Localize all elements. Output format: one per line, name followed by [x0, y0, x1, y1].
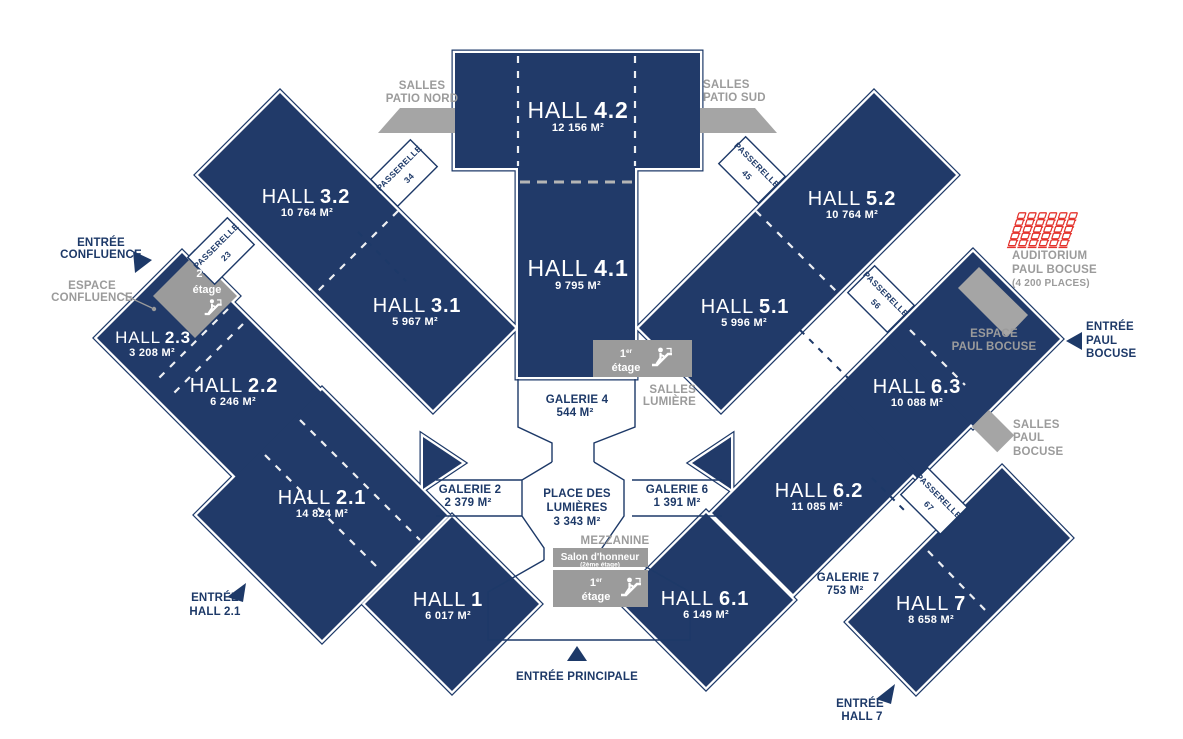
first-floor-box-mezzanine[interactable]: 1er étage — [553, 570, 648, 607]
salles-patio-sud-shape[interactable] — [700, 108, 777, 133]
salles-paul-bocuse-label: SALLES — [1013, 419, 1060, 431]
galerie-7-label: GALERIE 7 — [817, 572, 880, 584]
hall-1-area: 6 017 M² — [425, 610, 471, 622]
salles-paul-bocuse-label2: PAUL — [1013, 432, 1044, 444]
salles-lumiere-label2: LUMIÈRE — [643, 395, 696, 408]
hall-4-2-area: 12 156 M² — [552, 122, 604, 134]
salles-patio-nord-shape[interactable] — [378, 108, 455, 133]
floor-plan-page: PASSERELLE 23 PASSERELLE 34 PASSERELLE 4… — [0, 0, 1183, 739]
hall-6-2-label: HALL6.2 — [775, 480, 863, 502]
hall-6-3-area: 10 088 M² — [891, 397, 943, 409]
place-des-lumieres-area: 3 343 M² — [554, 516, 601, 528]
hall-6-3-label: HALL6.3 — [873, 376, 961, 398]
auditorium-capacity: (4 200 PLACES) — [1012, 278, 1090, 289]
espace-paul-bocuse-label: ESPACE — [970, 328, 1018, 340]
hall-3-2-label: HALL3.2 — [262, 186, 350, 208]
salles-patio-sud-label2: PATIO SUD — [703, 92, 766, 104]
hall-1-label: HALL1 — [413, 589, 483, 611]
hall-5-2-area: 10 764 M² — [826, 209, 878, 221]
hall-7-area: 8 658 M² — [908, 614, 954, 626]
entree-confluence-label: ENTRÉE — [77, 236, 125, 249]
salon-honneur-box[interactable]: Salon d'honneur (2ème étage) — [553, 548, 648, 569]
mezzanine-label: MEZZANINE — [581, 535, 650, 547]
entree-paul-bocuse-label: ENTRÉE — [1086, 320, 1134, 333]
svg-text:étage: étage — [193, 284, 222, 296]
entree-paul-bocuse-arrow-icon — [1066, 332, 1082, 350]
salles-patio-nord-label: SALLES — [399, 80, 446, 92]
svg-text:étage: étage — [582, 591, 611, 603]
salles-paul-bocuse-label3: BOCUSE — [1013, 446, 1064, 458]
hall-2-1-area: 14 824 M² — [296, 508, 348, 520]
hall-2-3-label: HALL2.3 — [115, 328, 191, 347]
galerie-6-area: 1 391 M² — [654, 497, 701, 509]
galerie-4-label: GALERIE 4 — [546, 394, 609, 406]
galerie-2-area: 2 379 M² — [445, 497, 492, 509]
first-floor-box-lumiere[interactable]: 1er étage — [593, 340, 692, 377]
hall-6-1-label: HALL6.1 — [661, 588, 749, 610]
entree-confluence-arrow-icon — [133, 251, 152, 273]
galerie-7-area: 753 M² — [827, 585, 864, 597]
hall-3-2-area: 10 764 M² — [281, 207, 333, 219]
entree-principale-arrow-icon — [567, 646, 587, 661]
hall-5-1-area: 5 996 M² — [721, 317, 767, 329]
hall-2-2-label: HALL2.2 — [190, 375, 278, 397]
hall-3-1-corner-wedge — [423, 437, 462, 489]
entree-paul-bocuse-label2: PAUL — [1086, 335, 1117, 347]
salles-lumiere-label: SALLES — [649, 384, 696, 396]
galerie-2-label: GALERIE 2 — [439, 484, 502, 496]
place-des-lumieres-label2: LUMIÈRES — [546, 501, 607, 514]
hall-2-1-label: HALL2.1 — [278, 487, 366, 509]
place-des-lumieres-label: PLACE DES — [543, 488, 611, 500]
entree-principale-label: ENTRÉE PRINCIPALE — [516, 670, 638, 683]
entree-hall-7-label2: HALL 7 — [841, 711, 882, 723]
entree-hall-2-1-label2: HALL 2.1 — [189, 606, 241, 618]
svg-text:étage: étage — [612, 362, 641, 374]
auditorium-label2: PAUL BOCUSE — [1012, 264, 1097, 276]
auditorium-seats-icon — [1007, 213, 1079, 248]
hall-5-1-corner-wedge — [692, 437, 731, 489]
hall-7-label: HALL7 — [896, 593, 966, 615]
galerie-4-area: 544 M² — [557, 407, 594, 419]
entree-confluence-label2: CONFLUENCE — [60, 249, 142, 261]
espace-confluence-label: ESPACE — [68, 280, 116, 292]
salles-patio-sud-label: SALLES — [703, 79, 750, 91]
galerie-6-label: GALERIE 6 — [646, 484, 709, 496]
hall-3-1-area: 5 967 M² — [392, 316, 438, 328]
hall-4-1-area: 9 795 M² — [555, 280, 601, 292]
hall-6-2-area: 11 085 M² — [791, 501, 843, 513]
auditorium-label: AUDITORIUM — [1012, 250, 1087, 262]
floor-plan-svg: PASSERELLE 23 PASSERELLE 34 PASSERELLE 4… — [0, 0, 1183, 739]
hall-5-1-label: HALL5.1 — [701, 296, 789, 318]
svg-text:(2ème étage): (2ème étage) — [580, 562, 620, 569]
hall-3-1-label: HALL3.1 — [373, 295, 461, 317]
hall-4-2-label: HALL4.2 — [527, 97, 628, 123]
hall-6-1-area: 6 149 M² — [683, 609, 729, 621]
salles-patio-nord-label2: PATIO NORD — [386, 93, 459, 105]
entree-paul-bocuse-label3: BOCUSE — [1086, 348, 1137, 360]
hall-4-1-label: HALL4.1 — [527, 255, 628, 281]
espace-paul-bocuse-label2: PAUL BOCUSE — [952, 341, 1037, 353]
hall-2-3-area: 3 208 M² — [129, 347, 175, 359]
hall-5-2-label: HALL5.2 — [808, 188, 896, 210]
hall-2-2-area: 6 246 M² — [210, 396, 256, 408]
